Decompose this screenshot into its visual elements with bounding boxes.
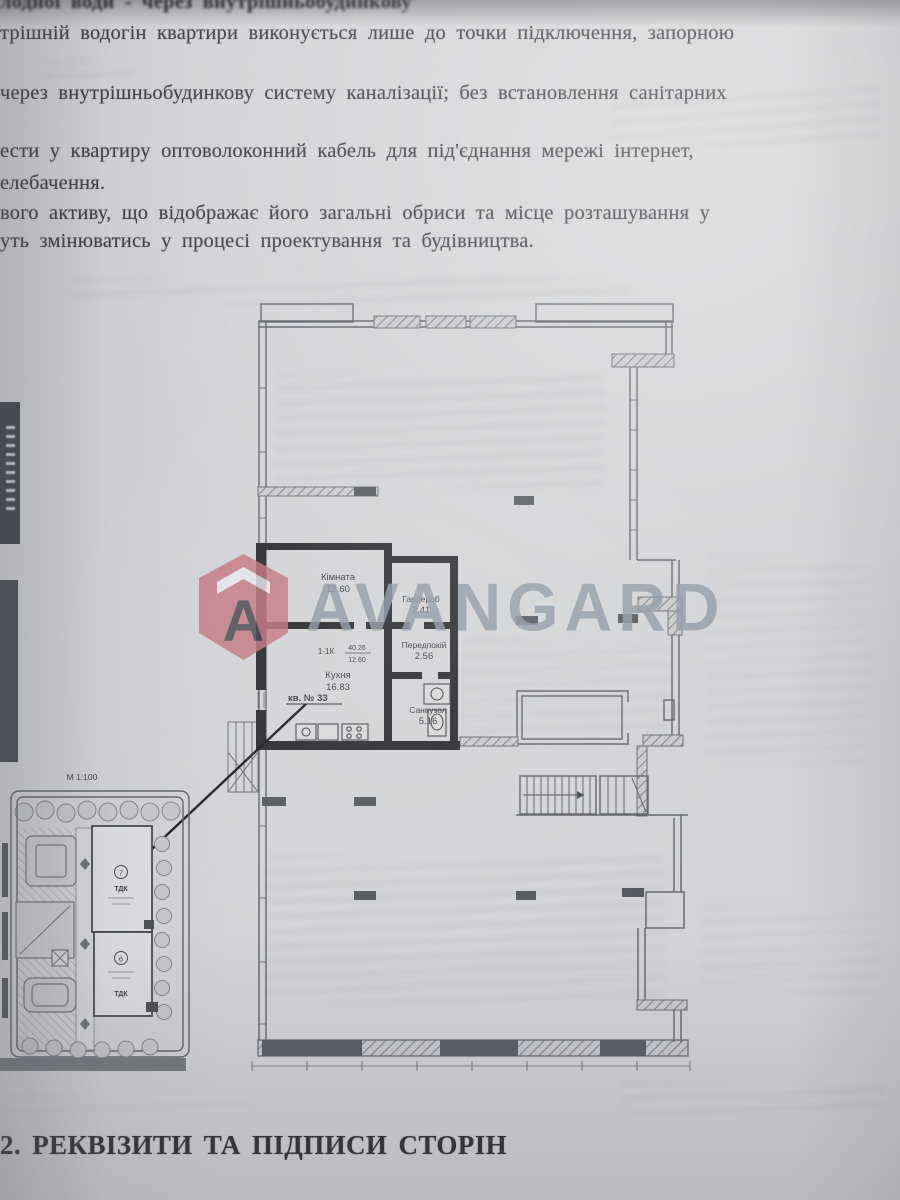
- doc-text-line-cropped: лодної води - через внутрішньобудинкову: [0, 0, 412, 14]
- kitchen-fixtures: [296, 724, 368, 740]
- site-plan: М 1:100: [0, 772, 189, 1071]
- room-label-bedroom: Кімната: [321, 572, 356, 583]
- svg-text:ТДК: ТДК: [114, 886, 128, 893]
- site-building-7: 7 ТДК: [92, 826, 152, 932]
- svg-text:7: 7: [119, 869, 123, 878]
- doc-text-line: через внутрішньобудинкову систему каналі…: [0, 82, 727, 105]
- photo-edge-artifact: [0, 402, 20, 544]
- svg-text:1-1К: 1-1К: [318, 647, 335, 656]
- floor-plan: Кімната 12.60 Гардероб 2.41 Передпокій 2…: [130, 304, 690, 1071]
- site-building-6: 6 ТДК: [94, 932, 152, 1016]
- room-area-wardrobe: 2.41: [412, 605, 431, 616]
- room-label-wardrobe: Гардероб: [402, 594, 440, 604]
- apartment-number-label: кв. № 33: [288, 693, 328, 704]
- room-area-hallway: 2.56: [415, 651, 434, 662]
- floor-plan-drawing: Кімната 12.60 Гардероб 2.41 Передпокій 2…: [0, 0, 900, 1200]
- room-label-bathroom: Санвузол: [409, 705, 447, 715]
- staircase: [520, 776, 648, 814]
- photo-edge-artifact: [0, 580, 18, 762]
- doc-text-line: ести у квартиру оптоволоконний кабель дл…: [0, 140, 694, 163]
- balcony: [228, 722, 258, 792]
- room-area-bedroom: 12.60: [326, 584, 350, 595]
- svg-text:40.26: 40.26: [348, 645, 366, 652]
- svg-text:12.60: 12.60: [348, 657, 366, 664]
- section-heading: 2. РЕКВІЗИТИ ТА ПІДПИСИ СТОРІН: [0, 1130, 507, 1161]
- svg-text:ТДК: ТДК: [114, 991, 128, 998]
- doc-text-line: елебачення.: [0, 172, 105, 195]
- room-area-kitchen: 16.83: [326, 682, 350, 693]
- doc-text-line: вого активу, що відображає його загальні…: [0, 202, 710, 225]
- document-photo: Кімната 12.60 Гардероб 2.41 Передпокій 2…: [0, 0, 900, 1200]
- svg-text:6: 6: [119, 955, 123, 964]
- room-area-bathroom: 5.16: [419, 716, 438, 727]
- unit-area-label: 1-1К 40.26 12.60: [318, 645, 371, 664]
- room-label-kitchen: Кухня: [325, 670, 350, 681]
- doc-text-line: уть змінюватись у процесі проектування т…: [0, 230, 534, 253]
- doc-text-line: трішній водогін квартири виконується лиш…: [0, 22, 734, 45]
- site-plan-scale: М 1:100: [67, 772, 98, 782]
- room-label-hallway: Передпокій: [402, 640, 447, 650]
